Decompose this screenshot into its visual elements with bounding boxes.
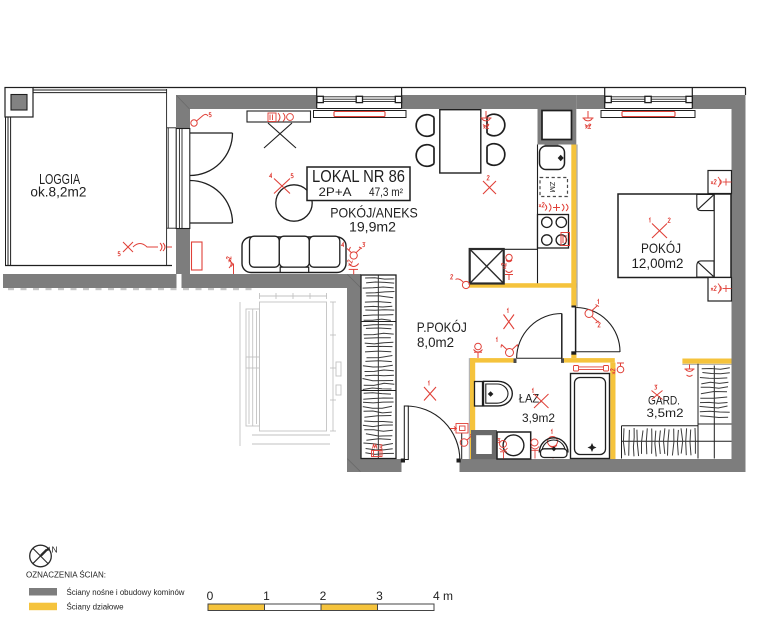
svg-text:ZM: ZM [548, 182, 557, 193]
svg-text:ok.8,2m2: ok.8,2m2 [30, 183, 86, 199]
svg-text:2: 2 [320, 589, 327, 603]
svg-text:1: 1 [263, 589, 270, 603]
svg-text:LOKAL NR 86: LOKAL NR 86 [312, 166, 405, 186]
svg-text:N: N [52, 545, 58, 555]
svg-text:3,5m2: 3,5m2 [647, 406, 684, 420]
svg-text:12,00m2: 12,00m2 [632, 256, 684, 271]
svg-text:Ściany działowe: Ściany działowe [67, 603, 125, 612]
svg-text:3: 3 [376, 589, 383, 603]
svg-text:47,3 m²: 47,3 m² [369, 187, 403, 199]
svg-text:4 m: 4 m [433, 589, 453, 603]
svg-text:POKÓJ: POKÓJ [641, 240, 681, 256]
svg-text:POKÓJ/ANEKS: POKÓJ/ANEKS [330, 204, 418, 220]
svg-text:OZNACZENIA ŚCIAN:: OZNACZENIA ŚCIAN: [26, 571, 106, 580]
svg-text:8,0m2: 8,0m2 [417, 335, 454, 350]
svg-text:3,9m2: 3,9m2 [522, 411, 555, 425]
svg-text:19,9m2: 19,9m2 [349, 219, 396, 234]
svg-text:P.POKÓJ: P.POKÓJ [417, 319, 467, 335]
svg-text:2P+A: 2P+A [319, 187, 352, 199]
svg-text:0: 0 [207, 589, 214, 603]
svg-text:Ściany nośne i obudowy kominów: Ściany nośne i obudowy kominów [67, 588, 185, 597]
